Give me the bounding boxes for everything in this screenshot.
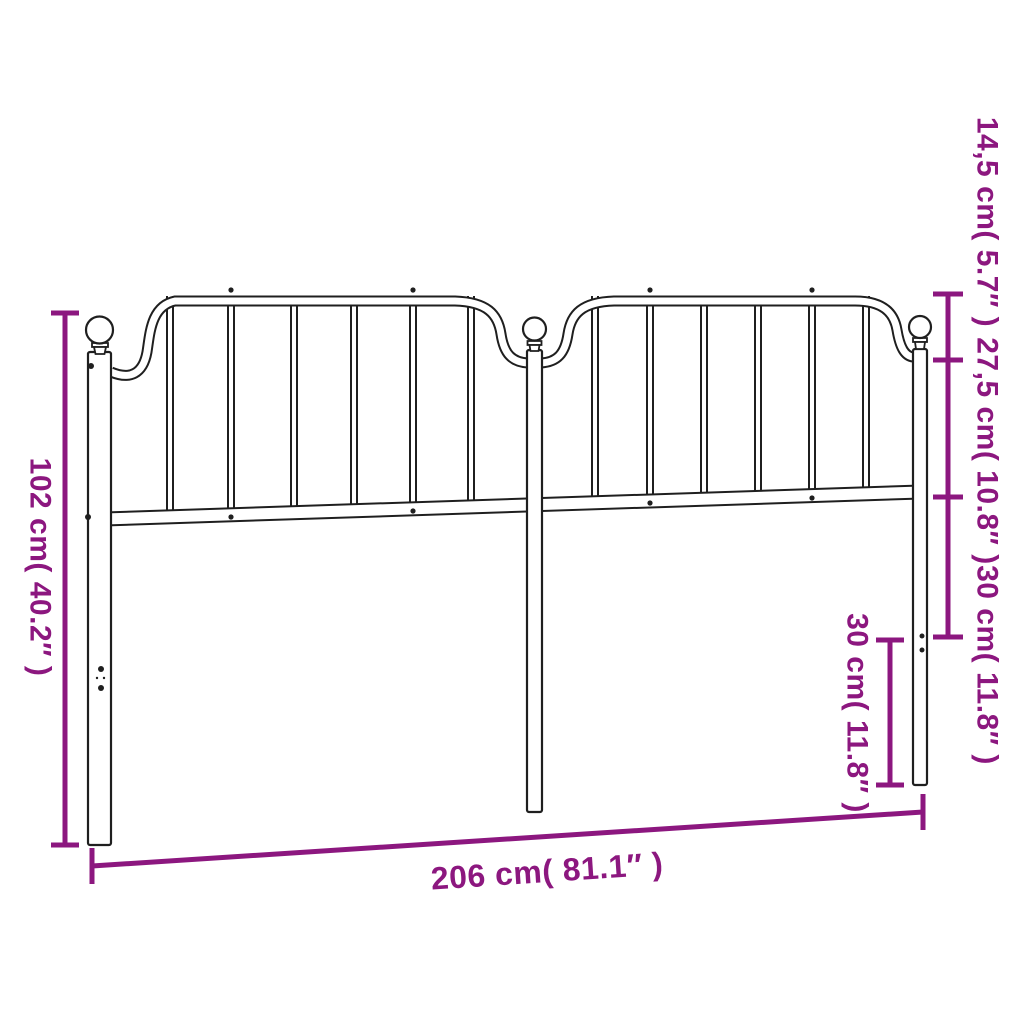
spindles [170, 296, 866, 517]
left-post [88, 352, 111, 845]
bottom-rail [104, 492, 921, 519]
width-dimension-label: 206 cm( 81.1″ ) [430, 845, 665, 896]
ball-finial-right [909, 316, 931, 338]
diagram-canvas: 102 cm( 40.2″ ) 206 cm( 81.1″ ) 14,5 cm(… [0, 0, 1024, 1024]
post-screw-holes [85, 363, 925, 691]
ball-finial-left [86, 317, 113, 344]
mounting-height-dimension-label: 30 cm( 11.8″ ) [841, 613, 874, 813]
lower-right-dimension-label: 30 cm( 11.8″ ) [971, 565, 1004, 765]
top-section-dimension-label: 14,5 cm( 5.7″ ) [971, 117, 1004, 327]
headboard-drawing [85, 287, 931, 845]
right-post [913, 349, 927, 785]
mid-section-dimension-label: 27,5 cm( 10.8″ ) [971, 337, 1004, 565]
rail-fastener-dots [228, 287, 814, 519]
headboard-dimension-diagram: 102 cm( 40.2″ ) 206 cm( 81.1″ ) 14,5 cm(… [0, 0, 1024, 1024]
height-dimension-label: 102 cm( 40.2″ ) [24, 458, 57, 677]
ball-finial-center [523, 318, 546, 341]
inner-dimension-line [876, 640, 904, 785]
right-dimension-line [933, 294, 963, 637]
center-post [527, 350, 542, 812]
